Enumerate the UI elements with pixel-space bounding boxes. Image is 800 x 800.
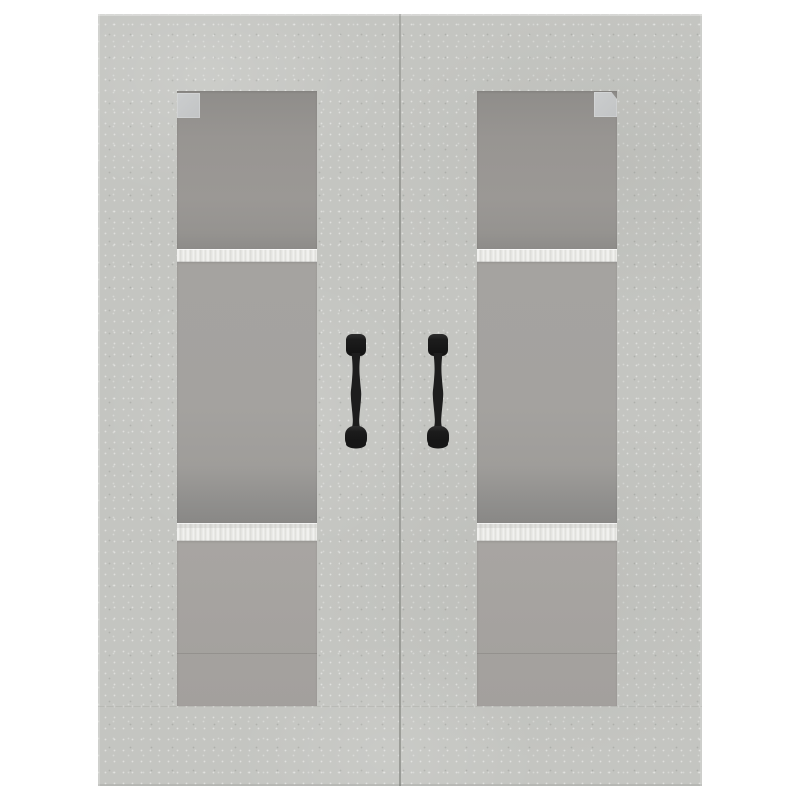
back-panel-seam (177, 653, 317, 654)
product-photo-canvas (0, 0, 800, 800)
compartment-middle-right (477, 262, 617, 523)
wall-cabinet (98, 14, 702, 786)
compartment-bottom-right (477, 541, 617, 706)
shelf-edge-lower-right (477, 523, 617, 541)
glass-panel-left (177, 91, 317, 706)
shelf-edge-upper-right (477, 249, 617, 262)
glass-panel-right (477, 91, 617, 706)
door-handle-right (419, 333, 457, 449)
door-bottom-edge (98, 706, 702, 707)
compartment-bottom-left (177, 541, 317, 706)
door-gap-seam (399, 14, 401, 786)
compartment-middle-left (177, 262, 317, 523)
hinge-plate-left (177, 93, 200, 118)
door-handle-left (337, 333, 375, 449)
back-panel-seam (477, 653, 617, 654)
hinge-plate-right (594, 92, 617, 117)
shelf-edge-lower-left (177, 523, 317, 541)
shelf-edge-upper-left (177, 249, 317, 262)
